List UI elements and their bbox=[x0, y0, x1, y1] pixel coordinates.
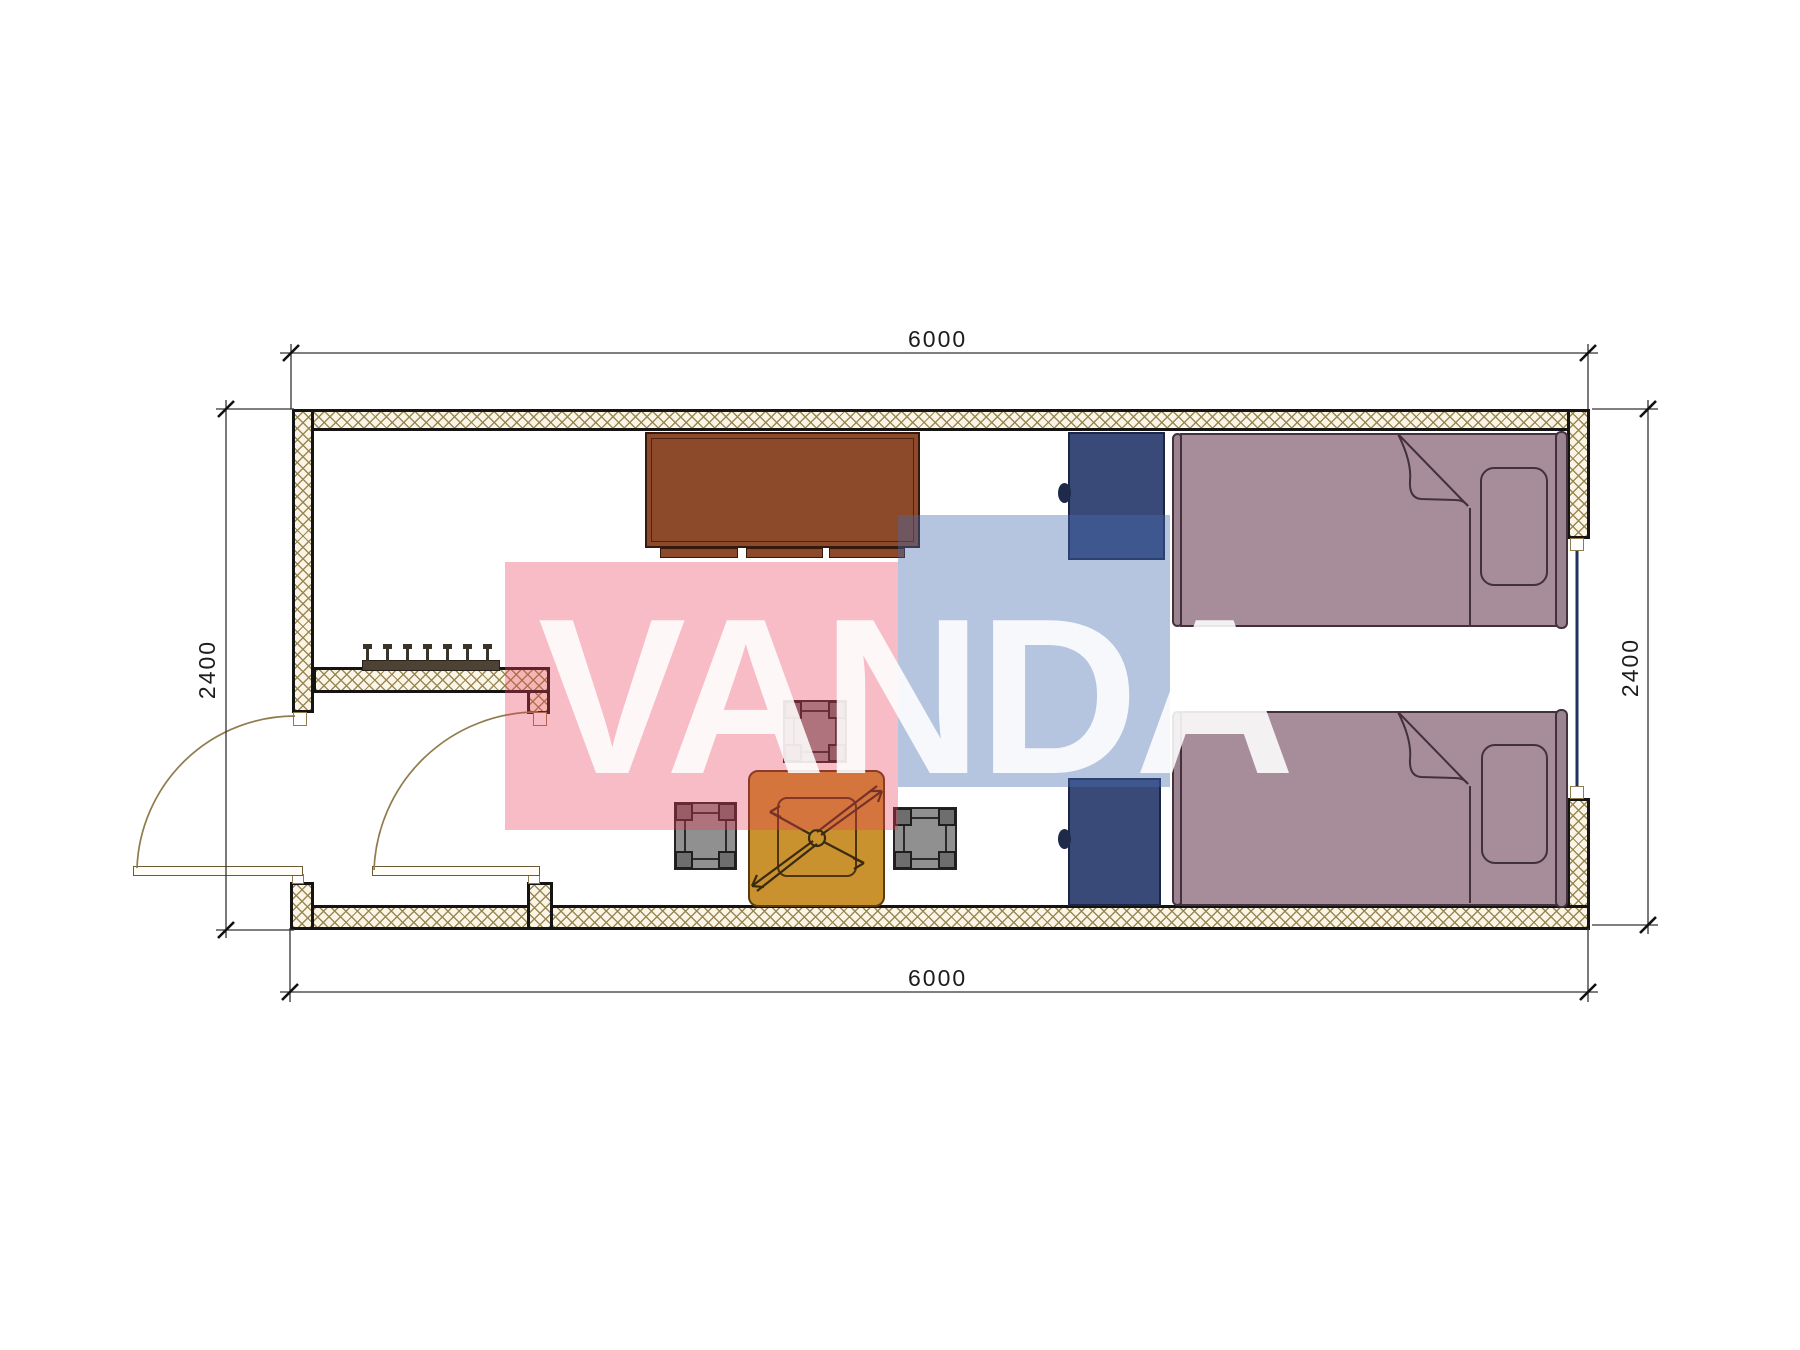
dim-left-label: 2400 bbox=[194, 640, 221, 699]
dim-right-label: 2400 bbox=[1617, 638, 1644, 697]
entry-door-swing-arc bbox=[137, 716, 295, 868]
dim-bottom-label: 6000 bbox=[908, 965, 967, 992]
bed-1-blanket-fold bbox=[1398, 434, 1470, 626]
bed-2-blanket-fold bbox=[1398, 712, 1470, 903]
floor-plan: 6000 6000 2400 2400 VANDA bbox=[0, 0, 1800, 1350]
dim-top-label: 6000 bbox=[908, 326, 967, 353]
watermark-text: VANDA bbox=[538, 586, 1291, 808]
